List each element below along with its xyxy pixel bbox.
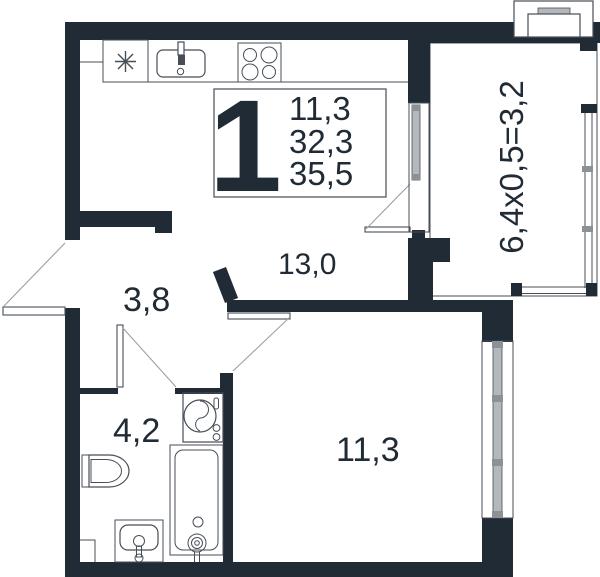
duct-shaft bbox=[80, 540, 95, 562]
bathtub-icon bbox=[170, 445, 223, 562]
chamfer-wall bbox=[222, 276, 229, 294]
bedroom-door bbox=[228, 313, 290, 371]
room-label-hallway: 3,8 bbox=[123, 283, 170, 317]
room-label-bedroom: 11,3 bbox=[336, 433, 400, 467]
balcony-area-formula: 6,4х0,5=3,2 bbox=[495, 67, 529, 267]
summary-living-area: 11,3 bbox=[289, 90, 351, 127]
kitchen-sink-icon bbox=[157, 42, 205, 77]
toilet-icon bbox=[82, 455, 129, 487]
basin-icon bbox=[115, 520, 163, 562]
bathroom-door bbox=[117, 325, 176, 387]
balcony-window bbox=[409, 103, 429, 232]
ac-unit-icon bbox=[514, 1, 593, 37]
fridge-asterisk-icon bbox=[103, 40, 148, 82]
summary-rooms-count: 1 bbox=[209, 80, 282, 211]
summary-total-area: 35,5 bbox=[289, 155, 353, 192]
summary-areas: 11,3 32,3 35,5 bbox=[289, 93, 353, 191]
summary-area-no-balcony: 32,3 bbox=[289, 123, 353, 160]
floor-plan: 1 11,3 32,3 35,5 13,0 3,8 4,2 11,3 6,4х0… bbox=[0, 0, 600, 577]
washing-machine-icon bbox=[183, 393, 223, 442]
entrance-door bbox=[3, 243, 65, 315]
room-label-bathroom: 4,2 bbox=[113, 414, 160, 448]
bedroom-window bbox=[482, 341, 513, 518]
room-label-kitchen-living: 13,0 bbox=[278, 250, 336, 280]
